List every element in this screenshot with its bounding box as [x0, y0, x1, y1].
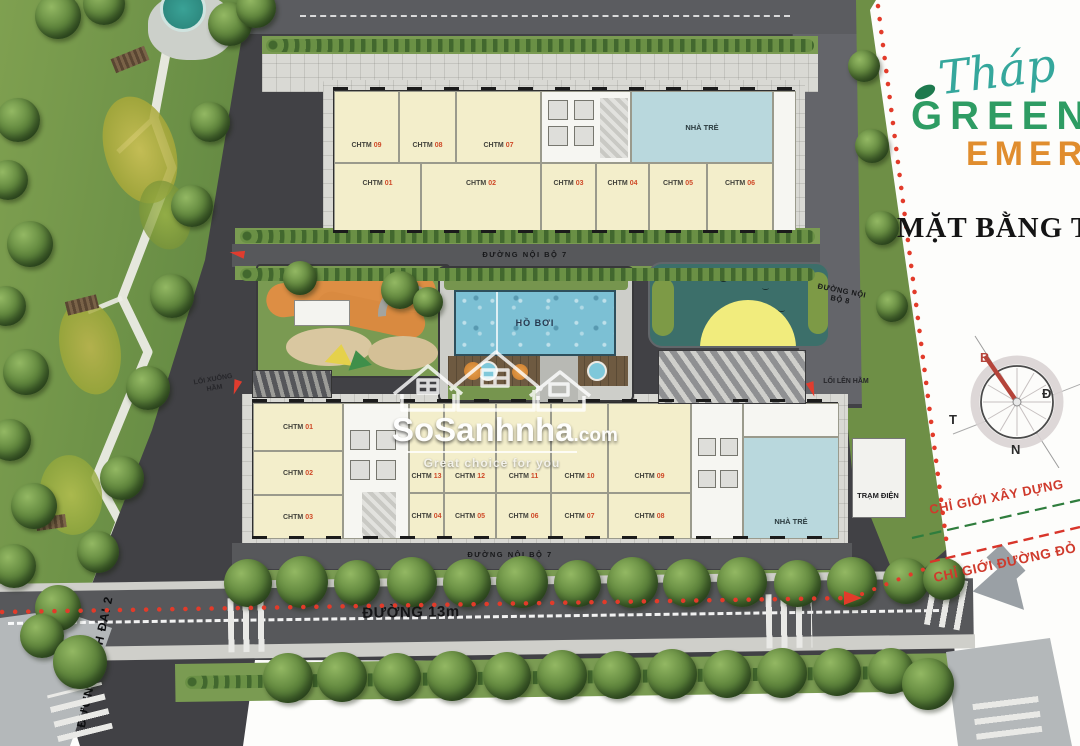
unit-chtm: CHTM06 — [707, 163, 773, 233]
hedge-row — [240, 268, 815, 281]
tree-icon — [554, 560, 601, 607]
unit-chtm: CHTM09 — [334, 91, 399, 163]
tree-icon — [717, 557, 767, 607]
compass-north: B — [980, 350, 989, 365]
building-wall-stubs — [333, 87, 795, 90]
unit-chtm: CHTM07 — [456, 91, 541, 163]
tree-icon — [100, 456, 144, 500]
unit-chtm: CHTM06 — [496, 493, 551, 539]
site-plan: ĐƯỜNG VÀNH ĐAI 2 CHTM09 CHTM08 CHTM07 NH… — [0, 0, 1080, 746]
tree-icon — [11, 483, 57, 529]
tree-icon — [283, 261, 317, 295]
tree-icon — [663, 559, 711, 607]
tree-icon — [77, 531, 119, 573]
tree-icon — [334, 560, 380, 606]
tree-icon — [496, 556, 548, 608]
compass-south: N — [1011, 442, 1020, 457]
corridor — [600, 98, 628, 158]
watermark-tld: .com — [574, 425, 618, 446]
unit-chtm: CHTM02 — [253, 451, 343, 495]
power-station: TRẠM ĐIỆN — [852, 438, 906, 518]
crosswalk — [972, 690, 1043, 740]
kindergarten-top: NHÀ TRẺ — [631, 91, 773, 163]
power-station-label: TRẠM ĐIỆN — [853, 491, 903, 500]
hedge-row — [266, 39, 814, 52]
bird-icon — [762, 286, 769, 290]
elevator-cell — [698, 470, 716, 488]
elevator-cell — [350, 430, 370, 450]
bird-icon — [778, 308, 785, 312]
elevator-cell — [350, 460, 370, 480]
compass-east: Đ — [1042, 386, 1051, 401]
watermark-name: SoSanhnha — [392, 411, 574, 448]
tree-icon — [757, 648, 807, 698]
tree-icon — [373, 653, 421, 701]
elevator-cell — [720, 438, 738, 456]
elevator-cell — [698, 438, 716, 456]
basement-up-label: LỐI LÊN HẦM — [822, 378, 870, 387]
pool-label: HỒ BƠI — [456, 318, 614, 329]
unit-chtm: CHTM05 — [444, 493, 496, 539]
tree-icon — [827, 557, 877, 607]
elevator-cell — [574, 126, 594, 146]
unit-chtm: CHTM05 — [649, 163, 707, 233]
tree-icon — [647, 649, 697, 699]
tree-icon — [483, 652, 531, 700]
tree-icon — [774, 560, 821, 607]
tree-icon — [263, 653, 313, 703]
page-title: MẶT BẰNG TỔ — [897, 212, 1080, 245]
building-wall-stubs — [252, 536, 838, 539]
building-wall-stubs — [333, 230, 795, 233]
logo-line2: EMER — [966, 135, 1080, 174]
watermark-tagline: Great choice for you — [407, 451, 577, 470]
building-endcap — [773, 91, 796, 233]
road-top-dashes — [300, 15, 790, 17]
unit-chtm: CHTM03 — [253, 495, 343, 539]
tree-icon — [53, 635, 107, 689]
unit-chtm: CHTM04 — [596, 163, 649, 233]
basement-ramp — [252, 370, 332, 398]
compass-west: T — [949, 412, 957, 427]
road-label-internal-7-top: ĐƯỜNG NỘI BỘ 7 — [460, 250, 590, 259]
swimming-pool: HỒ BƠI — [454, 290, 616, 356]
elevator-cell — [376, 460, 396, 480]
watermark: SoSanhnha.com Great choice for you — [392, 350, 592, 450]
tree-icon — [883, 558, 929, 604]
unit-chtm: CHTM04 — [409, 493, 444, 539]
tree-icon — [607, 557, 658, 608]
tree-icon — [413, 287, 443, 317]
tree-icon — [427, 651, 477, 701]
tree-icon — [848, 50, 880, 82]
building-core — [691, 403, 743, 539]
tree-icon — [902, 658, 954, 710]
unit-chtm: CHTM01 — [253, 403, 343, 451]
pavilion — [294, 300, 350, 326]
tree-icon — [3, 349, 49, 395]
corridor — [362, 492, 396, 538]
tree-icon — [703, 650, 751, 698]
elevator-cell — [574, 100, 594, 120]
building-top: CHTM09 CHTM08 CHTM07 NHÀ TRẺ CHTM01 CHTM… — [333, 90, 795, 232]
unit-chtm: CHTM07 — [551, 493, 608, 539]
tree-icon — [126, 366, 170, 410]
tree-icon — [443, 559, 491, 607]
building-core — [541, 91, 631, 163]
logo-line1: GREEN — [911, 94, 1080, 139]
elevator-cell — [548, 126, 568, 146]
watermark-text: SoSanhnha.com — [392, 411, 592, 449]
tree-icon — [224, 559, 272, 607]
unit-chtm: CHTM09 — [608, 403, 691, 493]
tree-icon — [813, 648, 861, 696]
road-top — [250, 0, 862, 34]
tree-icon — [876, 290, 908, 322]
tree-icon — [150, 274, 194, 318]
roof-hatch — [658, 350, 806, 404]
tree-icon — [171, 185, 213, 227]
unit-chtm: CHTM08 — [399, 91, 456, 163]
tree-icon — [855, 129, 889, 163]
unit-chtm: CHTM01 — [334, 163, 421, 233]
watermark-houses-icon — [392, 350, 592, 412]
elevator-cell — [720, 470, 738, 488]
tree-icon — [190, 102, 230, 142]
tree-icon — [276, 556, 328, 608]
tree-icon — [317, 652, 367, 702]
elevator-cell — [548, 100, 568, 120]
unit-chtm: CHTM03 — [541, 163, 596, 233]
pond-bush — [652, 278, 674, 336]
tree-icon — [7, 221, 53, 267]
tree-icon — [865, 211, 899, 245]
service-rooms — [743, 403, 839, 437]
unit-chtm: CHTM08 — [608, 493, 691, 539]
unit-chtm: CHTM02 — [421, 163, 541, 233]
kindergarten-bottom: NHÀ TRẺ — [743, 437, 839, 539]
tree-icon — [387, 557, 437, 607]
tree-icon — [593, 651, 641, 699]
tree-icon — [537, 650, 587, 700]
